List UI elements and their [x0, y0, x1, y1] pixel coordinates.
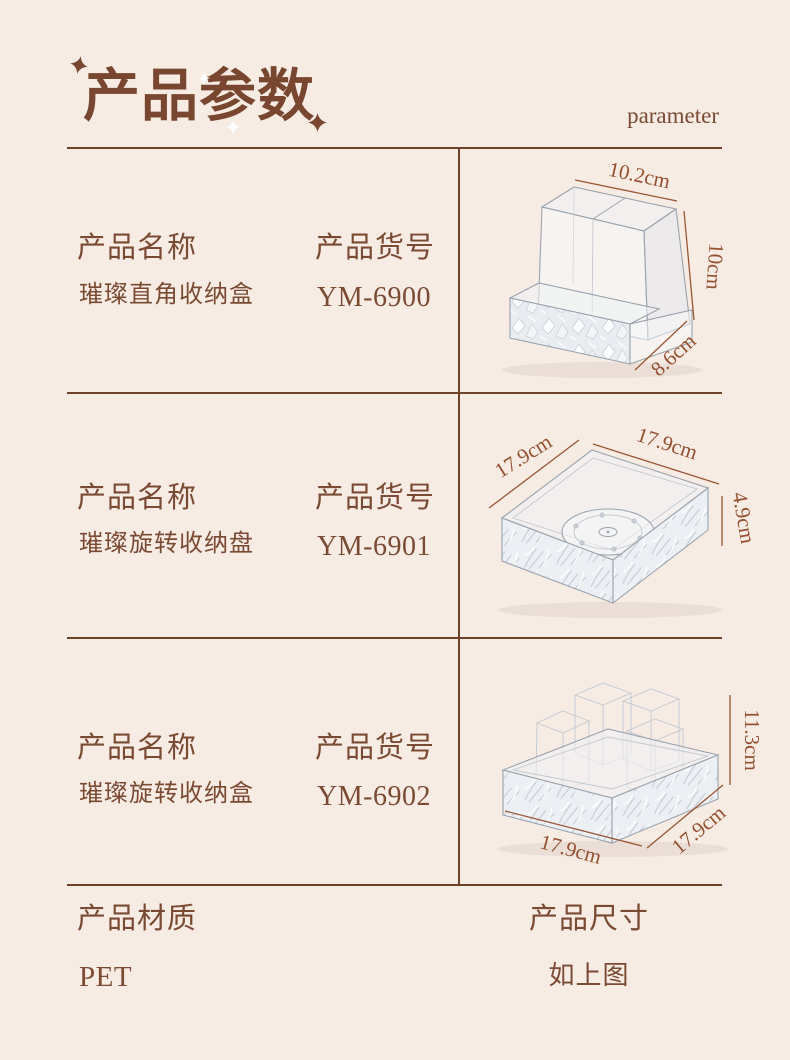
table-line-bottom [67, 884, 722, 886]
row3-sku-value: YM-6902 [317, 781, 431, 813]
product-image-ym6901: 17.9cm 17.9cm 4.9cm [475, 420, 765, 630]
row1-sku-label: 产品货号 [315, 232, 435, 265]
row3-name-label: 产品名称 [77, 732, 197, 765]
product-parameter-sheet: 产品参数 parameter 产品名称 璀璨直角收纳盒 产品货号 YM-6900 [0, 0, 790, 1060]
row1-name-value: 璀璨直角收纳盒 [79, 282, 254, 310]
row2-sku-label: 产品货号 [315, 482, 435, 515]
sparkle-icon [308, 113, 327, 132]
row1-sku-value: YM-6900 [317, 282, 431, 314]
dimension-label-height: 11.3cm [740, 709, 764, 771]
dimension-label-top: 17.9cm [634, 422, 701, 464]
dimension-label-left: 17.9cm [490, 429, 556, 482]
page-subtitle: parameter [627, 103, 719, 129]
row3-name-value: 璀璨旋转收纳盒 [79, 781, 254, 809]
glint-icon [198, 72, 210, 84]
table-divider-vertical [458, 147, 460, 886]
table-line-row2 [67, 637, 722, 639]
size-label: 产品尺寸 [529, 903, 649, 936]
row3-sku-label: 产品货号 [315, 732, 435, 765]
product-image-ym6902: 11.3cm 17.9cm 17.9cm [475, 653, 775, 883]
dimension-label-height: 10cm [701, 242, 728, 290]
dimension-label-height: 4.9cm [728, 490, 761, 545]
row1-name-label: 产品名称 [77, 232, 197, 265]
material-value: PET [79, 961, 132, 994]
size-value: 如上图 [548, 961, 629, 991]
glint-icon [226, 120, 240, 134]
row2-name-value: 璀璨旋转收纳盘 [79, 531, 254, 559]
product-image-ym6900: 10.2cm 10cm 8.6cm [480, 158, 740, 388]
table-line-top [67, 147, 722, 149]
material-label: 产品材质 [77, 903, 197, 936]
table-line-row1 [67, 392, 722, 394]
row2-sku-value: YM-6901 [317, 531, 431, 563]
row2-name-label: 产品名称 [77, 482, 197, 515]
